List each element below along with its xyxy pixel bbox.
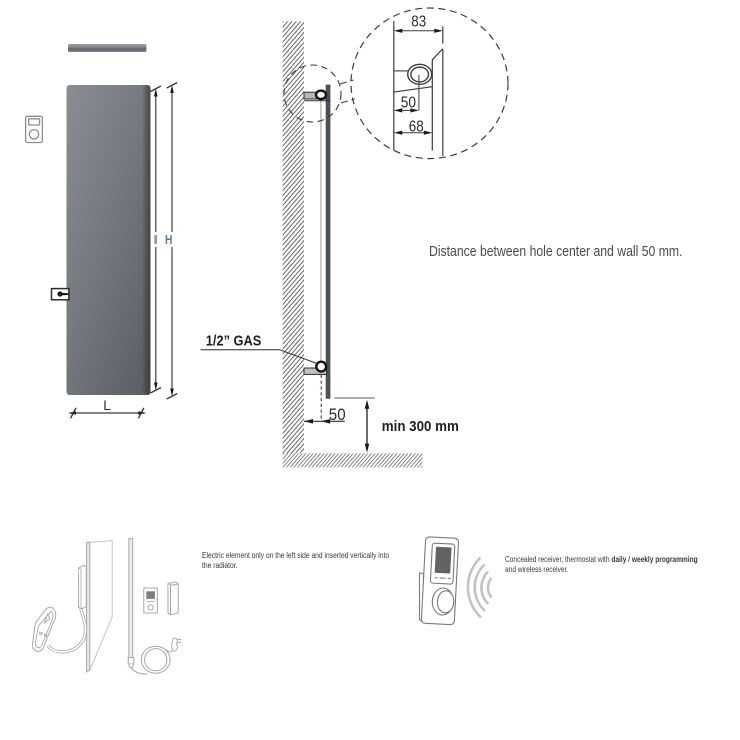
svg-text:L: L	[103, 398, 111, 413]
svg-text:min 300 mm: min 300 mm	[382, 418, 459, 435]
svg-text:H: H	[165, 233, 172, 247]
svg-text:68: 68	[409, 119, 424, 136]
svg-text:83: 83	[411, 13, 426, 30]
svg-text:1/2” GAS: 1/2” GAS	[206, 332, 261, 349]
svg-text:50: 50	[401, 95, 417, 112]
svg-text:50: 50	[329, 405, 346, 424]
